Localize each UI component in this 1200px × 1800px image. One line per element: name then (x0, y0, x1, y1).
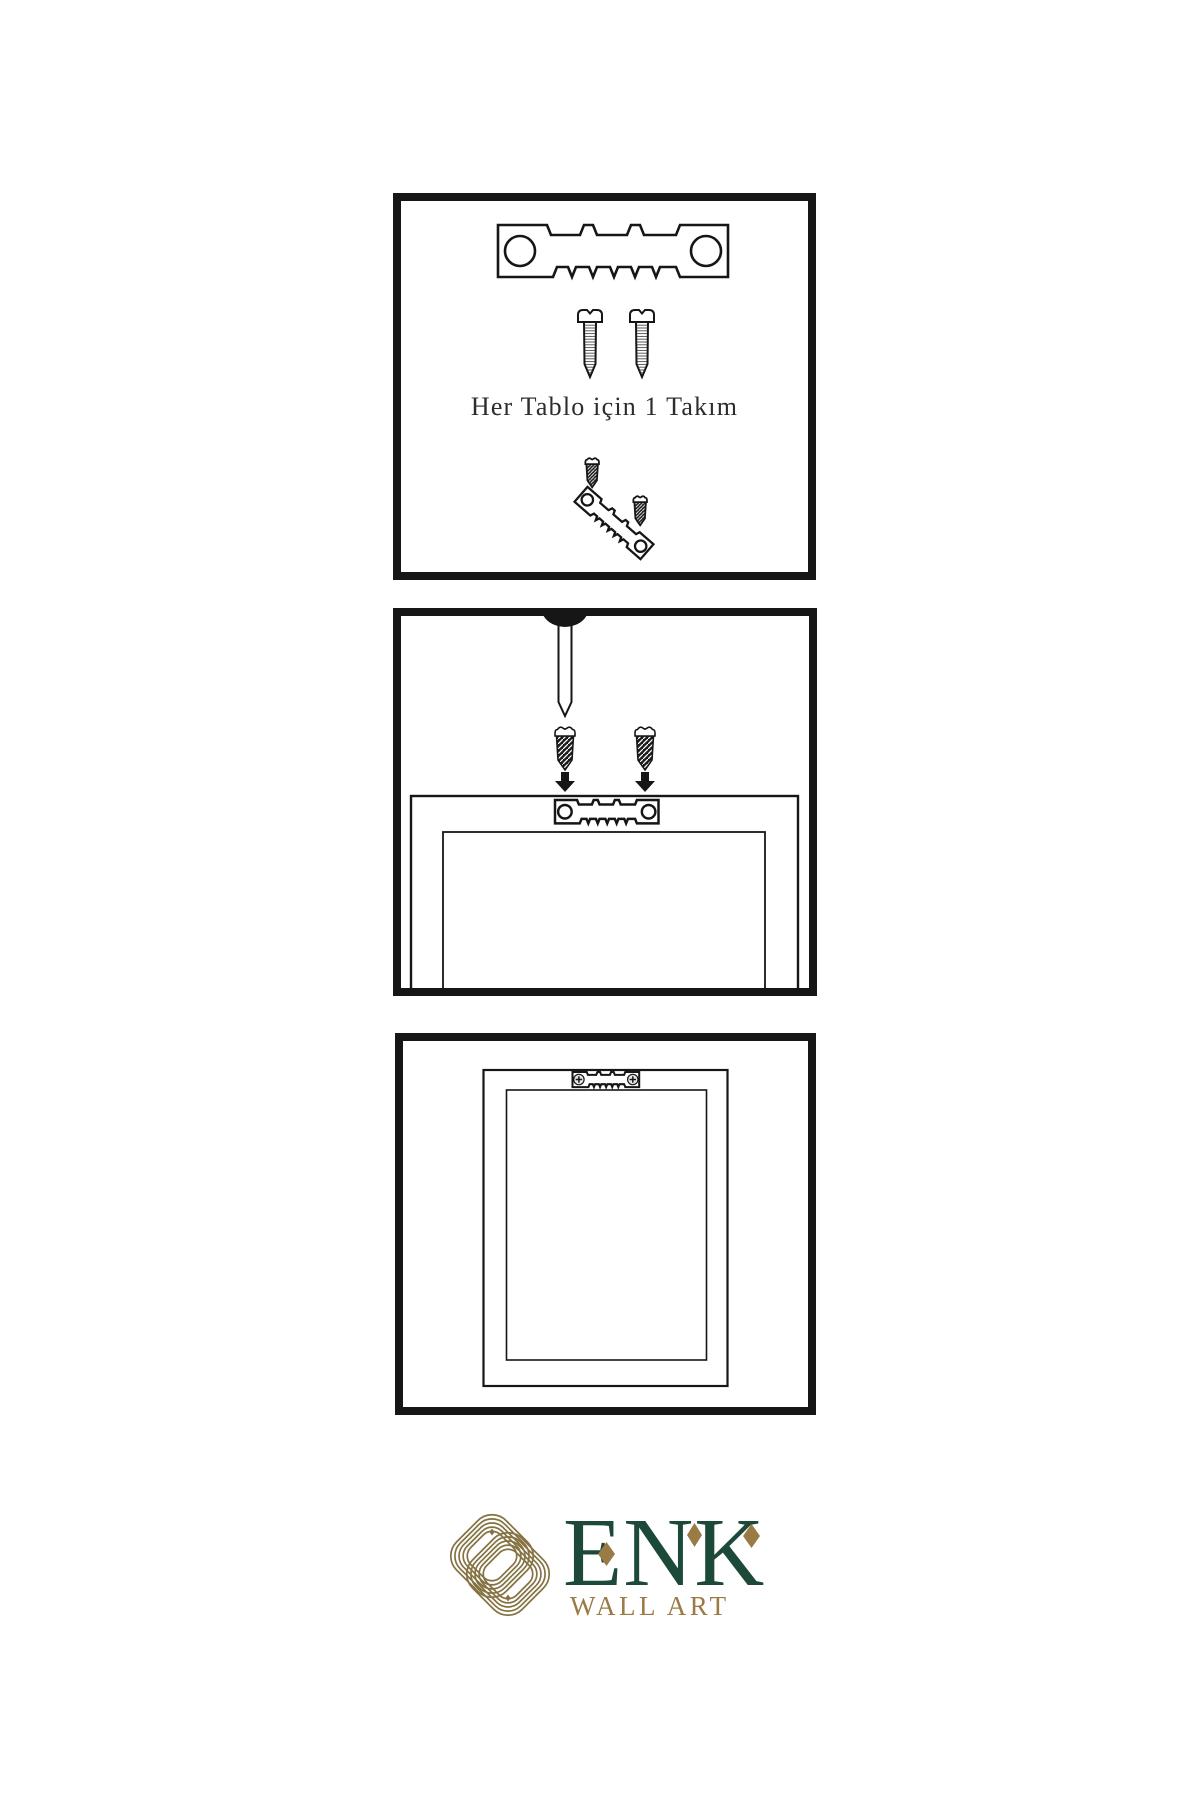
dark-screw-icon (585, 458, 599, 487)
panel-mounting-step (393, 608, 817, 996)
wall-nail-icon (559, 621, 572, 716)
hanging-instruction-sheet: Her Tablo için 1 Takım (0, 0, 1200, 1800)
phillips-screw-head-icon (574, 1074, 584, 1084)
down-arrow-icon (555, 772, 575, 792)
brand-wordmark: ENK (563, 1504, 765, 1601)
panel-finished-step (395, 1033, 816, 1415)
sawtooth-hanger-icon (555, 800, 659, 823)
frame-inner-edge (507, 1090, 707, 1360)
mounting-illustration (401, 616, 809, 988)
hardware-kit-illustration (401, 201, 808, 572)
dark-screw-icon (555, 727, 575, 770)
panel-hardware-kit: Her Tablo için 1 Takım (393, 193, 816, 580)
dark-screw-icon (635, 727, 655, 770)
phillips-screw-head-icon (628, 1074, 638, 1084)
nail-anchor-blob (543, 616, 587, 627)
screw-icon (578, 310, 602, 377)
brand-subtitle: WALL ART (570, 1593, 730, 1620)
knot-monogram-icon (440, 1500, 560, 1630)
screw-icon (630, 310, 654, 377)
kit-caption: Her Tablo için 1 Takım (401, 391, 808, 423)
hung-frame-illustration (403, 1041, 808, 1407)
frame-inner-edge (443, 832, 765, 988)
down-arrow-icon (635, 772, 655, 792)
sawtooth-hanger-icon (498, 225, 728, 277)
dark-screw-icon (633, 496, 647, 525)
